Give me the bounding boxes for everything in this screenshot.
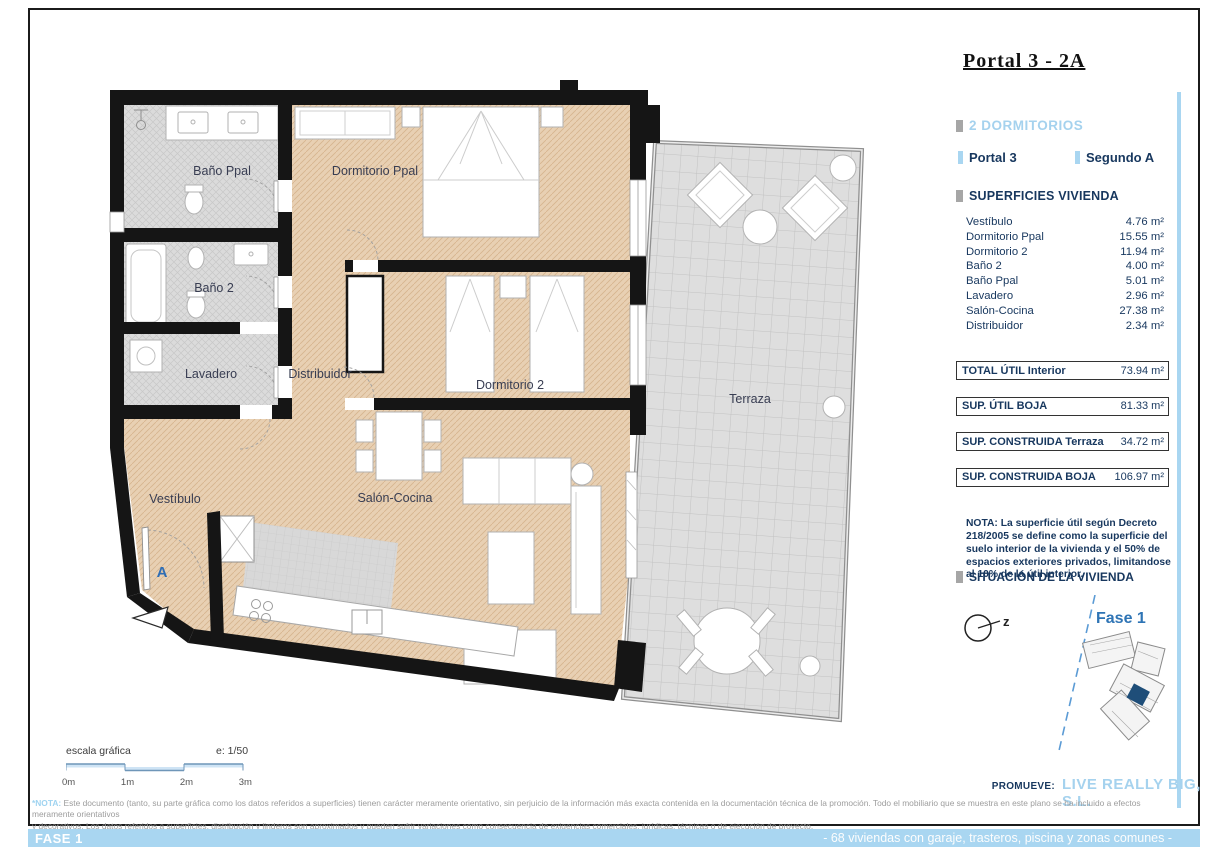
- totals-section: TOTAL ÚTIL Interior 73.94 m² SUP. ÚTIL B…: [956, 361, 1169, 503]
- bedrooms-header: 2 DORMITORIOS: [956, 118, 1083, 133]
- surfaces-table: Vestíbulo4.76 m² Dormitorio Ppal15.55 m²…: [966, 215, 1164, 333]
- terrace-side-table: [743, 210, 777, 244]
- building-cluster: [1083, 632, 1165, 740]
- development-tagline: - 68 viviendas con garaje, trasteros, pi…: [823, 831, 1200, 845]
- bottom-bar: FASE 1 - 68 viviendas con garaje, traste…: [28, 829, 1200, 847]
- planter: [823, 396, 845, 418]
- label-salon-cocina: Salón-Cocina: [357, 491, 432, 505]
- room-distribuidor: [292, 260, 345, 412]
- nightstand: [541, 107, 563, 127]
- floor-label: Segundo A: [1075, 150, 1154, 165]
- wardrobe-2: [347, 276, 383, 372]
- bullet-icon: [1075, 151, 1080, 164]
- toilet: [185, 190, 203, 214]
- bullet-icon: [956, 190, 963, 202]
- bullet-icon: [956, 120, 963, 132]
- label-dormitorio-2: Dormitorio 2: [476, 378, 544, 392]
- table-row: Distribuidor2.34 m²: [966, 319, 1164, 334]
- label-distribuidor: Distribuidor: [288, 367, 351, 381]
- toilet-2: [187, 294, 205, 318]
- bed-ppal: [423, 107, 539, 237]
- table-row: Baño Ppal5.01 m²: [966, 274, 1164, 289]
- portal-label: Portal 3: [958, 150, 1017, 165]
- total-util-interior: TOTAL ÚTIL Interior 73.94 m²: [956, 361, 1169, 380]
- table-row: Lavadero2.96 m²: [966, 289, 1164, 304]
- sup-util-boja: SUP. ÚTIL BOJA 81.33 m²: [956, 397, 1169, 416]
- nightstand: [402, 107, 420, 127]
- terrace-dining-table: [694, 608, 760, 674]
- scalebar-ratio: e: 1/50: [216, 745, 248, 757]
- situacion-header: SITUACIÓN DE LA VIVIENDA: [956, 570, 1134, 584]
- label-terraza: Terraza: [729, 392, 771, 406]
- label-vestibulo: Vestíbulo: [149, 492, 200, 506]
- bed-2a: [446, 276, 494, 392]
- sup-construida-boja: SUP. CONSTRUIDA BOJA 106.97 m²: [956, 468, 1169, 487]
- compass: z: [960, 608, 1020, 648]
- page-title: Portal 3 - 2A: [963, 50, 1085, 73]
- label-lavadero: Lavadero: [185, 367, 237, 381]
- sup-construida-terraza: SUP. CONSTRUIDA Terraza 34.72 m²: [956, 432, 1169, 451]
- sofa: [463, 458, 571, 504]
- nightstand: [500, 276, 526, 298]
- scalebar-ticks: 0m 1m 2m 3m: [62, 777, 252, 788]
- terrace-sliding-door: [626, 472, 637, 578]
- bullet-icon: [956, 571, 963, 583]
- scalebar-label: escala gráfica: [66, 745, 131, 757]
- table-row: Salón-Cocina27.38 m²: [966, 304, 1164, 319]
- floor-plan: Baño Ppal Dormitorio Ppal Baño 2 Lavader…: [90, 80, 890, 745]
- dining-table: [376, 412, 422, 480]
- bidet: [188, 247, 204, 269]
- planter: [800, 656, 820, 676]
- footnote-prefix: *NOTA:: [32, 798, 61, 808]
- table-row: Dormitorio Ppal15.55 m²: [966, 230, 1164, 245]
- label-bano-ppal: Baño Ppal: [193, 164, 251, 178]
- side-table: [571, 463, 593, 485]
- surfaces-header: SUPERFICIES VIVIENDA: [956, 189, 1119, 203]
- bed-2b: [530, 276, 584, 392]
- scalebar: [66, 758, 246, 774]
- fase-badge: FASE 1: [28, 831, 83, 846]
- site-minimap: [1030, 595, 1180, 760]
- bullet-icon: [958, 151, 963, 164]
- table-row: Vestíbulo4.76 m²: [966, 215, 1164, 230]
- table-row: Baño 24.00 m²: [966, 259, 1164, 274]
- coffee-table: [488, 532, 534, 604]
- planter: [830, 155, 856, 181]
- legal-footnote: *NOTA: Este documento (tanto, su parte g…: [32, 798, 1172, 832]
- bedrooms-label: 2 DORMITORIOS: [969, 118, 1083, 133]
- door-marker-a: A: [157, 564, 168, 581]
- label-dormitorio-ppal: Dormitorio Ppal: [332, 164, 418, 178]
- compass-letter: z: [1003, 614, 1010, 629]
- phase-boundary-line: [1058, 595, 1095, 755]
- promueve-label: PROMUEVE:: [962, 781, 1055, 792]
- table-row: Dormitorio 211.94 m²: [966, 245, 1164, 260]
- label-bano-2: Baño 2: [194, 281, 234, 295]
